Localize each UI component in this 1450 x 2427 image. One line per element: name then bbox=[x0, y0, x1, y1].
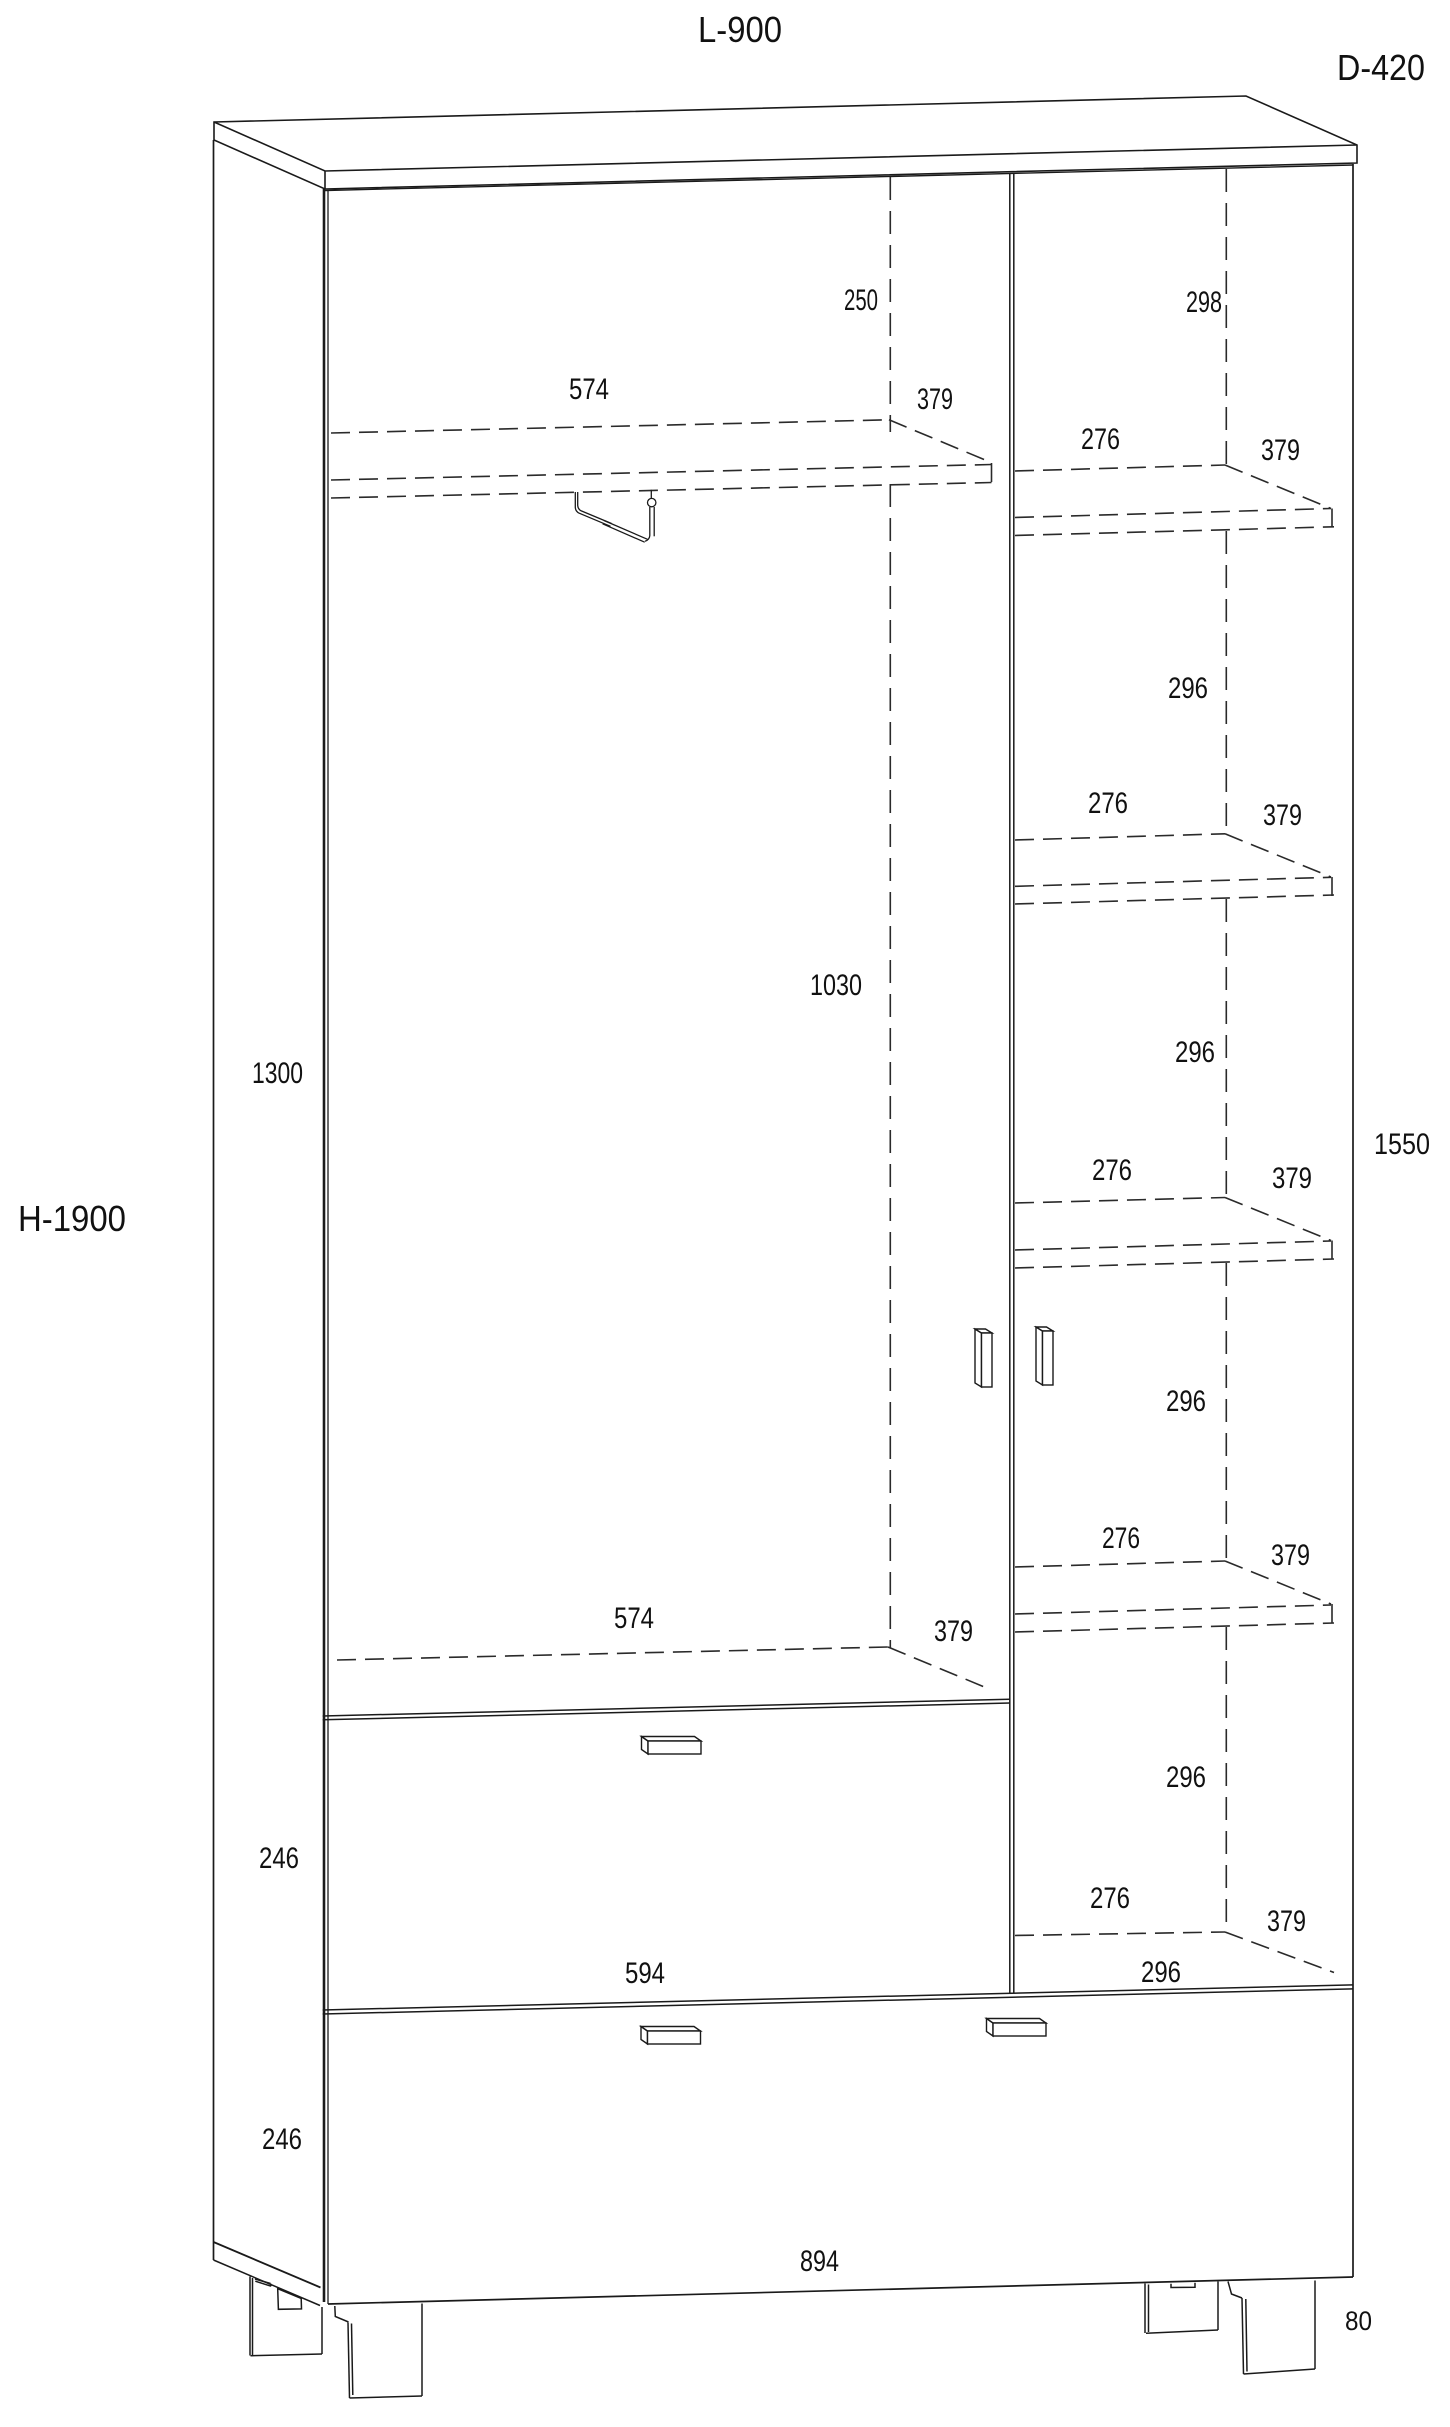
svg-text:276: 276 bbox=[1088, 787, 1128, 820]
svg-text:D-420: D-420 bbox=[1337, 47, 1425, 88]
svg-text:379: 379 bbox=[1271, 1539, 1310, 1572]
svg-text:379: 379 bbox=[1261, 434, 1300, 467]
svg-text:379: 379 bbox=[1272, 1162, 1312, 1195]
svg-text:296: 296 bbox=[1166, 1385, 1206, 1418]
svg-text:1300: 1300 bbox=[252, 1057, 303, 1090]
svg-text:L-900: L-900 bbox=[698, 9, 782, 50]
svg-text:894: 894 bbox=[800, 2245, 839, 2278]
svg-text:276: 276 bbox=[1102, 1522, 1140, 1555]
svg-text:246: 246 bbox=[262, 2123, 302, 2156]
svg-text:276: 276 bbox=[1090, 1882, 1130, 1915]
svg-text:250: 250 bbox=[844, 284, 878, 317]
svg-text:379: 379 bbox=[917, 383, 953, 416]
svg-text:1550: 1550 bbox=[1374, 1128, 1430, 1161]
svg-text:296: 296 bbox=[1141, 1956, 1181, 1989]
svg-text:1030: 1030 bbox=[810, 969, 862, 1002]
svg-text:296: 296 bbox=[1166, 1761, 1206, 1794]
svg-text:296: 296 bbox=[1175, 1036, 1215, 1069]
svg-text:276: 276 bbox=[1081, 423, 1120, 456]
svg-text:574: 574 bbox=[614, 1602, 654, 1635]
svg-text:594: 594 bbox=[625, 1957, 665, 1990]
svg-text:80: 80 bbox=[1345, 2306, 1372, 2336]
svg-text:379: 379 bbox=[1267, 1905, 1306, 1938]
svg-text:379: 379 bbox=[934, 1615, 973, 1648]
svg-text:296: 296 bbox=[1168, 672, 1208, 705]
svg-text:H-1900: H-1900 bbox=[18, 1198, 126, 1239]
svg-text:276: 276 bbox=[1092, 1154, 1132, 1187]
svg-text:298: 298 bbox=[1186, 286, 1222, 319]
svg-text:246: 246 bbox=[259, 1842, 299, 1875]
svg-text:574: 574 bbox=[569, 373, 609, 406]
svg-text:379: 379 bbox=[1263, 799, 1302, 832]
